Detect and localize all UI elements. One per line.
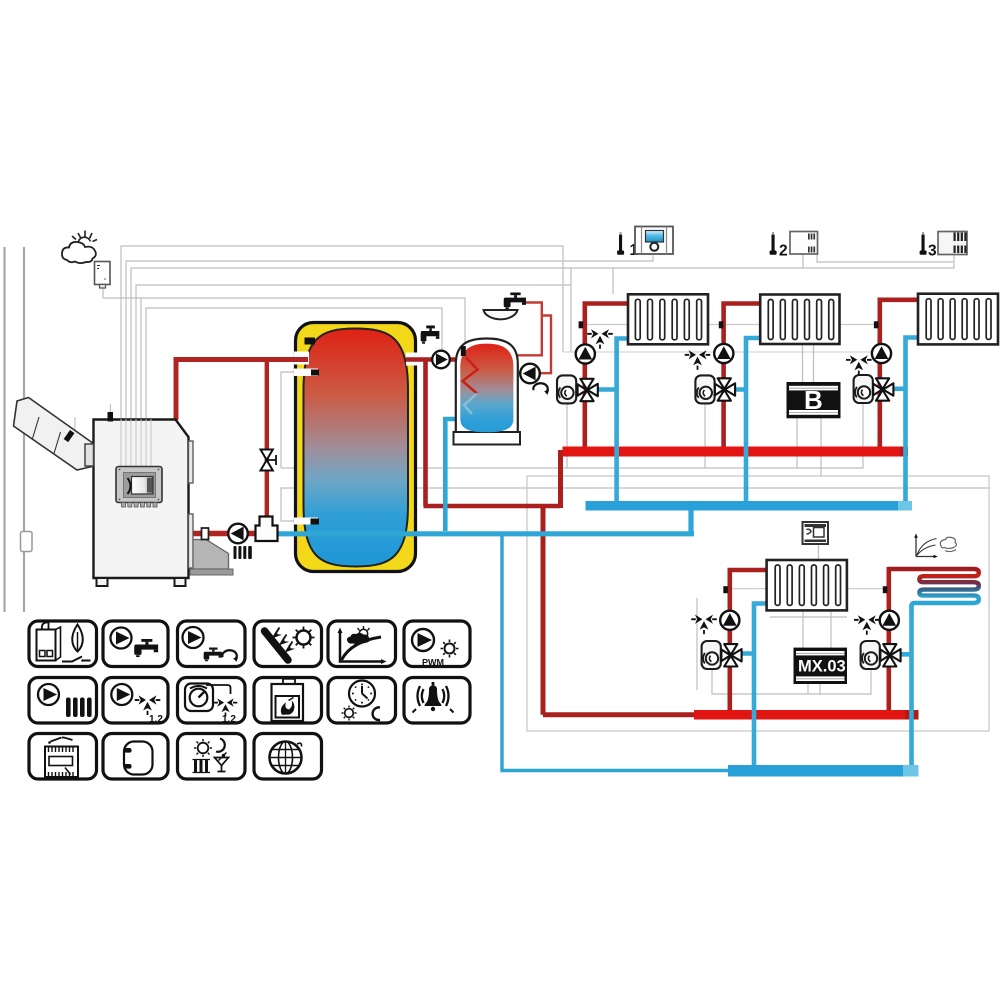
svg-text:B: B <box>804 385 823 415</box>
svg-text:2: 2 <box>779 243 788 260</box>
svg-text:1.2: 1.2 <box>149 714 163 725</box>
svg-text:3: 3 <box>928 243 937 260</box>
svg-text:PWM: PWM <box>422 658 444 668</box>
svg-text:1.2: 1.2 <box>222 714 236 725</box>
svg-text:MX.03: MX.03 <box>798 658 846 676</box>
